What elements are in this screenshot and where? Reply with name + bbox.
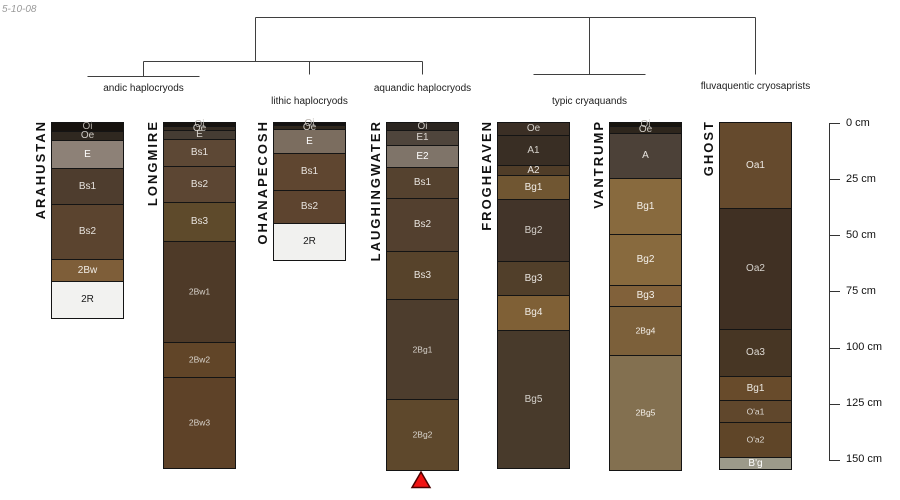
horizon-label: 2R (274, 237, 345, 247)
horizon-vantrump-oe: Oe (610, 127, 681, 134)
depth-tick-label: 50 cm (846, 229, 876, 241)
horizon-label: Bs2 (387, 220, 458, 230)
horizon-frogheaven-bg4: Bg4 (498, 296, 569, 331)
horizon-ohanapecosh-bs1: Bs1 (274, 154, 345, 191)
group-label-lithic-haplocryods: lithic haplocryods (271, 96, 348, 107)
horizon-label: Bg3 (498, 274, 569, 284)
horizon-arahustan-e: E (52, 141, 123, 169)
horizon-label: 2Bw1 (164, 288, 235, 297)
depth-tick (829, 404, 840, 405)
horizon-longmire-bs3: Bs3 (164, 203, 235, 242)
horizon-longmire-2bw2: 2Bw2 (164, 343, 235, 378)
horizon-label: 2Bw3 (164, 419, 235, 428)
horizon-label: Bs3 (164, 217, 235, 227)
horizon-label: O'a2 (720, 436, 791, 445)
horizon-arahustan-bs1: Bs1 (52, 169, 123, 205)
profile-column-vantrump: OiOeABg1Bg2Bg32Bg42Bg5 (609, 122, 682, 471)
horizon-label: O'a1 (720, 407, 791, 416)
horizon-frogheaven-a1: A1 (498, 136, 569, 166)
profile-name-ohanapecosh: OHANAPECOSH (255, 120, 270, 245)
horizon-arahustan-oe: Oe (52, 132, 123, 141)
horizon-label: Bs3 (387, 271, 458, 281)
profile-column-ghost: Oa1Oa2Oa3Bg1O'a1O'a2B'g (719, 122, 792, 470)
horizon-label: 2Bg1 (387, 345, 458, 354)
horizon-label: 2Bg5 (610, 409, 681, 418)
profile-name-ghost: GHOST (701, 120, 716, 176)
horizon-label: Oe (52, 131, 123, 141)
horizon-arahustan-2r: 2R (52, 282, 123, 318)
depth-tick (829, 235, 840, 236)
horizon-label: Bg1 (610, 202, 681, 212)
horizon-frogheaven-bg5: Bg5 (498, 331, 569, 468)
horizon-label: Bg2 (610, 255, 681, 265)
horizon-vantrump-a: A (610, 134, 681, 179)
sample-marker-triangle (410, 470, 432, 490)
horizon-label: Bg3 (610, 291, 681, 301)
horizon-label: E2 (387, 152, 458, 162)
horizon-label: 2Bw2 (164, 356, 235, 365)
horizon-label: A (610, 151, 681, 161)
horizon-label: E (274, 137, 345, 147)
depth-tick-label: 75 cm (846, 285, 876, 297)
horizon-label: Oi (52, 122, 123, 132)
horizon-label: A1 (498, 146, 569, 156)
horizon-laughingwater-e2: E2 (387, 146, 458, 168)
profile-name-arahustan: ARAHUSTAN (33, 120, 48, 219)
depth-tick-label: 125 cm (846, 397, 882, 409)
horizon-frogheaven-bg3: Bg3 (498, 262, 569, 296)
horizon-label: Bg1 (720, 384, 791, 394)
horizon-frogheaven-oe: Oe (498, 123, 569, 136)
horizon-ghost-oa2: O'a2 (720, 423, 791, 458)
horizon-vantrump-bg1: Bg1 (610, 179, 681, 235)
profile-name-laughingwater: LAUGHINGWATER (368, 120, 383, 261)
horizon-label: Oa1 (720, 161, 791, 171)
horizon-arahustan-bs2: Bs2 (52, 205, 123, 260)
group-label-fluvaquentic-cryosaprists: fluvaquentic cryosaprists (701, 81, 811, 92)
horizon-label: Bs1 (274, 167, 345, 177)
horizon-frogheaven-bg2: Bg2 (498, 200, 569, 262)
horizon-ohanapecosh-bs2: Bs2 (274, 191, 345, 224)
soil-profile-figure: 5-10-08 andic haplocryods lithic haplocr… (0, 0, 900, 500)
horizon-label: Oa2 (720, 264, 791, 274)
profile-name-frogheaven: FROGHEAVEN (479, 120, 494, 231)
horizon-ghost-oa1: O'a1 (720, 401, 791, 423)
horizon-label: Bg4 (498, 308, 569, 318)
horizon-vantrump-2bg4: 2Bg4 (610, 307, 681, 356)
depth-tick-label: 100 cm (846, 341, 882, 353)
horizon-ohanapecosh-2r: 2R (274, 224, 345, 260)
horizon-arahustan-oi: Oi (52, 123, 123, 132)
depth-tick-label: 0 cm (846, 117, 870, 129)
depth-tick (829, 291, 840, 292)
horizon-longmire-e: E (164, 131, 235, 140)
horizon-label: Bs1 (52, 182, 123, 192)
profile-name-longmire: LONGMIRE (145, 120, 160, 206)
horizon-label: Bg2 (498, 226, 569, 236)
horizon-laughingwater-e1: E1 (387, 131, 458, 146)
horizon-laughingwater-bs3: Bs3 (387, 252, 458, 300)
depth-tick-label: 150 cm (846, 453, 882, 465)
horizon-laughingwater-bs1: Bs1 (387, 168, 458, 199)
horizon-longmire-2bw3: 2Bw3 (164, 378, 235, 468)
horizon-label: 2R (52, 295, 123, 305)
horizon-label: Bs2 (164, 180, 235, 190)
depth-tick (829, 460, 840, 461)
group-label-typic-cryaquands: typic cryaquands (552, 96, 627, 107)
horizon-label: Bs1 (387, 178, 458, 188)
horizon-ghost-bg: B'g (720, 458, 791, 469)
profile-name-vantrump: VANTRUMP (591, 120, 606, 209)
horizon-ohanapecosh-e: E (274, 130, 345, 154)
horizon-label: E (52, 150, 123, 160)
horizon-arahustan-2bw: 2Bw (52, 260, 123, 282)
horizon-frogheaven-a2: A2 (498, 166, 569, 176)
horizon-laughingwater-bs2: Bs2 (387, 199, 458, 252)
horizon-label: Bg1 (498, 183, 569, 193)
horizon-ghost-bg1: Bg1 (720, 377, 791, 401)
horizon-label: 2Bg2 (387, 431, 458, 440)
profile-column-arahustan: OiOeEBs1Bs22Bw2R (51, 122, 124, 319)
horizon-vantrump-2bg5: 2Bg5 (610, 356, 681, 470)
horizon-laughingwater-2bg1: 2Bg1 (387, 300, 458, 400)
horizon-laughingwater-2bg2: 2Bg2 (387, 400, 458, 470)
group-label-aquandic-haplocryods: aquandic haplocryods (374, 83, 471, 94)
horizon-label: 2Bw (52, 266, 123, 276)
profile-column-frogheaven: OeA1A2Bg1Bg2Bg3Bg4Bg5 (497, 122, 570, 469)
horizon-laughingwater-oi: Oi (387, 123, 458, 131)
horizon-label: Bg5 (498, 395, 569, 405)
horizon-label: Oe (498, 124, 569, 134)
depth-tick-label: 25 cm (846, 173, 876, 185)
horizon-label: Oa3 (720, 348, 791, 358)
horizon-vantrump-bg2: Bg2 (610, 235, 681, 286)
profile-column-longmire: OiOeEBs1Bs2Bs32Bw12Bw22Bw3 (163, 122, 236, 469)
horizon-label: E (164, 130, 235, 140)
horizon-longmire-bs1: Bs1 (164, 140, 235, 167)
horizon-label: E1 (387, 133, 458, 143)
horizon-label: Oi (387, 122, 458, 132)
horizon-label: 2Bg4 (610, 327, 681, 336)
horizon-ghost-oa2: Oa2 (720, 209, 791, 330)
depth-tick (829, 123, 840, 124)
group-label-andic-haplocryods: andic haplocryods (103, 83, 184, 94)
dendrogram-branches (88, 18, 756, 77)
horizon-vantrump-bg3: Bg3 (610, 286, 681, 307)
horizon-longmire-bs2: Bs2 (164, 167, 235, 203)
profile-column-ohanapecosh: OiOeEBs1Bs22R (273, 122, 346, 261)
horizon-longmire-2bw1: 2Bw1 (164, 242, 235, 343)
horizon-label: A2 (498, 166, 569, 176)
horizon-label: Bs2 (274, 202, 345, 212)
horizon-label: Bs1 (164, 148, 235, 158)
profile-column-laughingwater: OiE1E2Bs1Bs2Bs32Bg12Bg2 (386, 122, 459, 471)
horizon-ghost-oa1: Oa1 (720, 123, 791, 209)
horizon-frogheaven-bg1: Bg1 (498, 176, 569, 200)
horizon-label: B'g (720, 459, 791, 469)
horizon-label: Bs2 (52, 227, 123, 237)
horizon-ghost-oa3: Oa3 (720, 330, 791, 377)
depth-tick (829, 179, 840, 180)
depth-tick (829, 348, 840, 349)
